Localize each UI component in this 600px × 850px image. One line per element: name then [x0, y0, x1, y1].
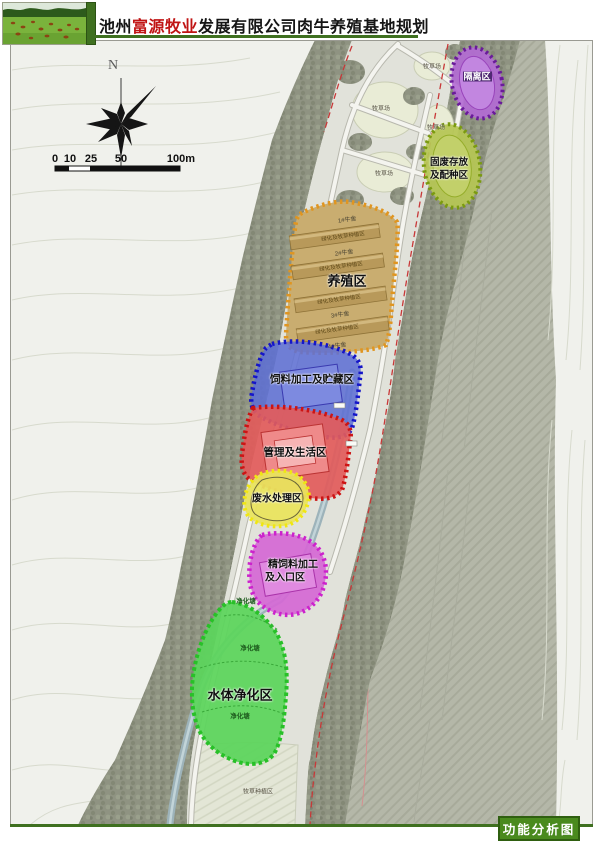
scale-tick-50: 50	[115, 153, 127, 165]
label-breeding-zone: 养殖区	[327, 271, 366, 290]
label-wastewater-zone: 废水处理区	[252, 490, 302, 505]
label-concentrate-line2: 及入口区	[265, 569, 305, 584]
label-solid-waste-line1: 固废存放	[430, 154, 468, 168]
label-pasture-1: 牧草场	[423, 62, 441, 71]
label-feed-zone: 饲料加工及贮藏区	[270, 372, 354, 387]
label-pond-3: 净化塘	[230, 710, 250, 720]
title-company-highlight: 富源牧业	[132, 19, 198, 36]
label-pond-1: 净化塘	[236, 595, 256, 605]
label-planting-area: 牧草种植区	[243, 787, 273, 796]
label-isolation-text: 隔离区	[462, 72, 491, 82]
scale-tick-10: 10	[64, 153, 76, 165]
drawing-caption: 功能分析图	[498, 816, 580, 841]
title-suffix: 发展有限公司肉牛养殖基地规划	[198, 19, 429, 36]
title-prefix: 池州	[99, 19, 132, 36]
title-underline	[94, 35, 418, 38]
label-solid-waste-line2: 及配种区	[430, 167, 468, 181]
header-green-bar	[86, 2, 96, 45]
label-pasture-3: 牧草场	[427, 123, 445, 132]
label-isolation-zone: 隔离区	[462, 70, 492, 83]
site-map	[0, 0, 600, 850]
scale-tick-100: 100m	[167, 153, 195, 165]
label-management-zone: 管理及生活区	[264, 445, 327, 460]
scale-tick-0: 0	[52, 153, 58, 165]
page-title: 池州富源牧业发展有限公司肉牛养殖基地规划	[99, 13, 429, 37]
label-pond-2: 净化塘	[240, 642, 260, 652]
label-pasture-2: 牧草场	[372, 104, 390, 113]
scale-tick-25: 25	[85, 153, 97, 165]
scale-bar-graphic	[55, 166, 180, 171]
label-water-purification-zone: 水体净化区	[207, 685, 272, 704]
pasture-photo	[2, 2, 87, 45]
compass-north-label: N	[108, 58, 118, 74]
plan-sheet: 池州富源牧业发展有限公司肉牛养殖基地规划 N 0 10 25 50 100m 隔…	[0, 0, 600, 850]
label-pasture-4: 牧草场	[375, 169, 393, 178]
